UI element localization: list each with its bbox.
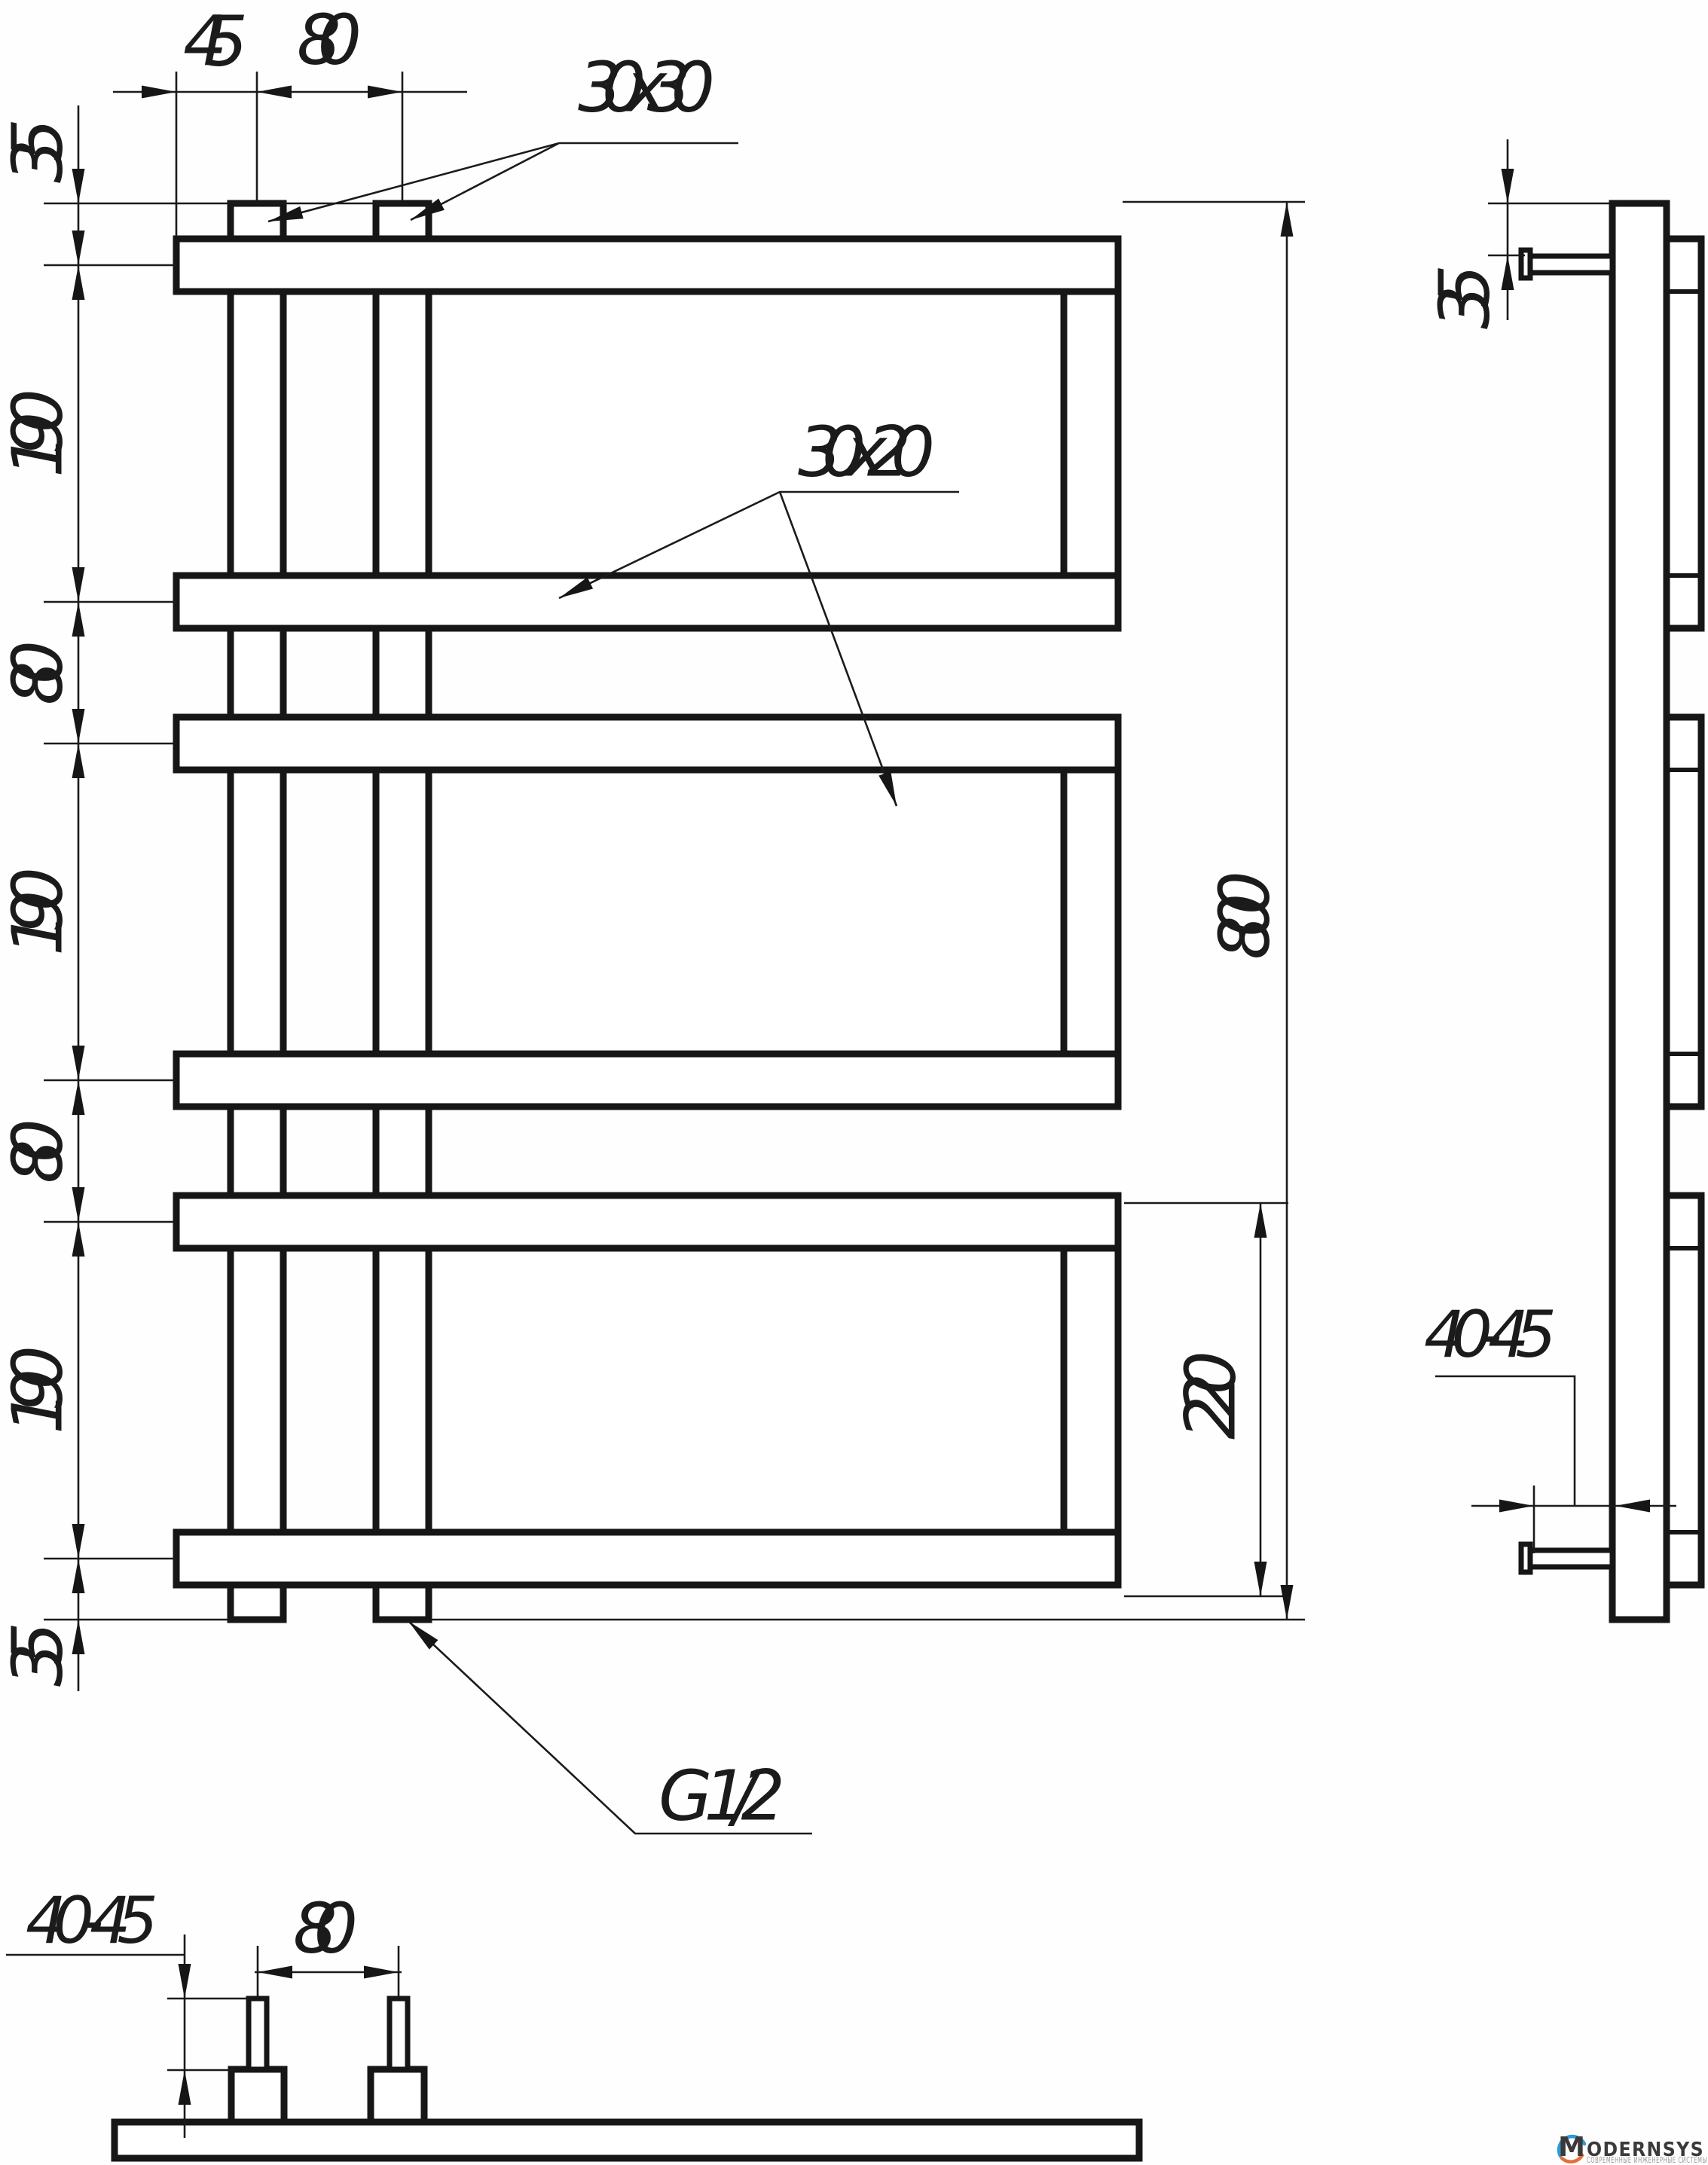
bottom-dim-wall-40-45: 40-45 (26, 1883, 158, 1959)
side-riser-profile (1612, 203, 1667, 1620)
panel-loop-cap-1 (1064, 239, 1118, 628)
label-panel-profile-30x20: 30x20 (798, 412, 935, 493)
label-thread-g12: G 1/2 (658, 1756, 785, 1837)
panel-loop-cap-3 (1064, 1195, 1118, 1585)
rung-5 (176, 1195, 1118, 1248)
logo-brand-initial: M (1558, 2132, 1585, 2163)
dim-chain-5: 190 (0, 1345, 78, 1434)
dim-overall-height-800: 800 (1205, 871, 1285, 960)
side-dim-top-offset-35: 35 (1425, 264, 1505, 329)
front-view (176, 203, 1118, 1620)
bottom-riser-stub-2 (371, 2069, 424, 2122)
bottom-view (115, 1999, 1139, 2158)
label-tab-profile-30x30: 30x30 (578, 47, 715, 128)
technical-drawing: 45 80 30x30 30x20 35 190 80 190 80 190 3… (0, 0, 1708, 2165)
dim-chain-2: 80 (0, 640, 78, 705)
drawing-sheet: 45 80 30x30 30x20 35 190 80 190 80 190 3… (0, 0, 1708, 2165)
bottom-riser-stub-1 (231, 2069, 284, 2122)
dim-top-offset-45: 45 (183, 2, 248, 82)
dim-chain-0: 35 (0, 118, 78, 183)
side-wall-connector-bottom-cap (1521, 1544, 1530, 1572)
brand-logo: M ODERNSYS СОВРЕМЕННЫЕ ИНЖЕНЕРНЫЕ СИСТЕМ… (1558, 2132, 1707, 2165)
bottom-pipe-2 (390, 1999, 408, 2069)
riser-left (231, 203, 283, 1620)
side-wall-connector-bottom (1528, 1550, 1612, 1567)
side-panel-segment-3 (1667, 1195, 1701, 1585)
rung-4 (176, 1054, 1118, 1107)
side-wall-connector-top-cap (1521, 250, 1530, 278)
bottom-dim-riser-spacing-80: 80 (293, 1889, 358, 1969)
panel-loop-cap-2 (1064, 717, 1118, 1107)
panel-window-2 (429, 770, 1064, 1054)
side-view (1521, 203, 1701, 1620)
dim-chain-1: 190 (0, 389, 78, 478)
rung-3 (176, 717, 1118, 770)
riser-right (376, 203, 429, 1620)
rung-2 (176, 576, 1118, 628)
dim-chain-3: 190 (0, 867, 78, 956)
rung-1 (176, 239, 1118, 292)
bottom-pipe-1 (249, 1999, 267, 2069)
logo-tagline: СОВРЕМЕННЫЕ ИНЖЕНЕРНЫЕ СИСТЕМЫ (1587, 2155, 1707, 2165)
side-wall-connector-top (1528, 256, 1612, 273)
dim-chain-6: 35 (0, 1622, 78, 1687)
bottom-wall-plate (115, 2122, 1139, 2158)
side-panel-segment-2 (1667, 717, 1701, 1107)
rung-6 (176, 1532, 1118, 1585)
dim-chain-4: 80 (0, 1119, 78, 1183)
side-dim-wall-40-45: 40-45 (1424, 1297, 1557, 1373)
dim-panel-height-220: 220 (1171, 1351, 1251, 1440)
side-panel-segment-1 (1667, 239, 1701, 628)
dim-riser-spacing-80: 80 (297, 0, 362, 81)
panel-window-1 (429, 292, 1064, 576)
panel-window-3 (429, 1248, 1064, 1532)
